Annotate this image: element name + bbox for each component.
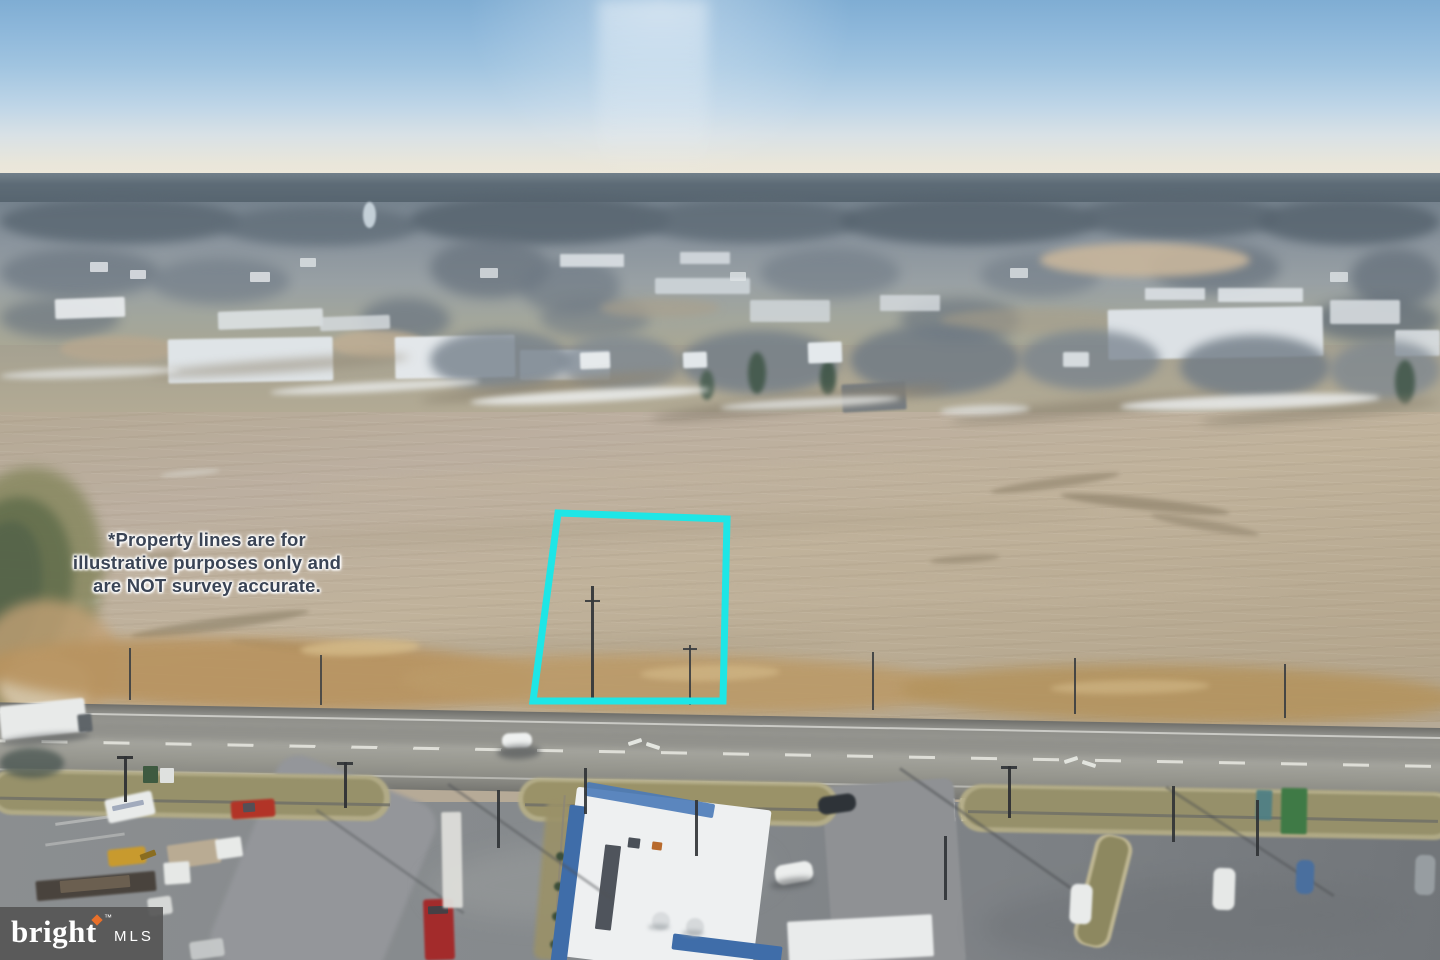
brightmls-brand-text: bright [11,914,97,950]
trademark-symbol: ™ [104,913,112,922]
property-disclaimer-text: *Property lines are forillustrative purp… [62,528,352,597]
brightmls-mls-text: MLS [114,928,154,945]
brightmls-watermark: bright ™ MLS [0,907,163,960]
property-outline [0,0,1440,960]
disclaimer-line: illustrative purposes only and [62,551,352,574]
disclaimer-line: *Property lines are for [62,528,352,551]
disclaimer-line: are NOT survey accurate. [62,574,352,597]
aerial-photo: *Property lines are forillustrative purp… [0,0,1440,960]
